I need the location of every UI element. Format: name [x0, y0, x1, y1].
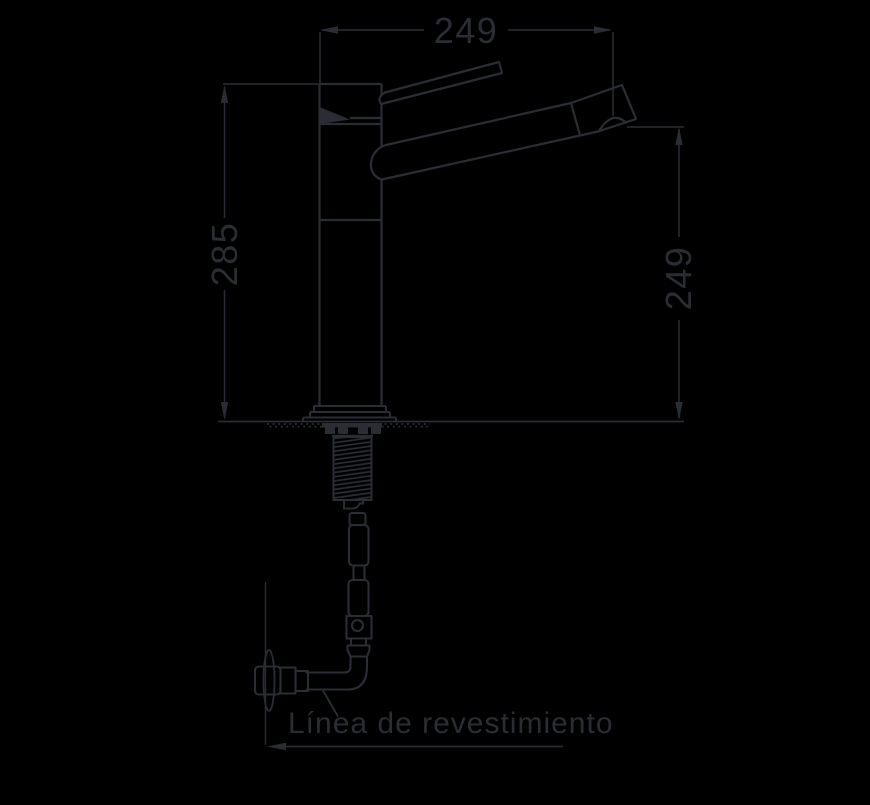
- arrow-right-icon: [594, 26, 612, 34]
- dimension-right-value: 249: [658, 246, 699, 311]
- arrow-down-icon: [675, 402, 682, 420]
- supply-hose: [347, 513, 372, 657]
- arrow-up-icon: [221, 85, 228, 103]
- dimension-top-value: 249: [434, 10, 499, 51]
- dimension-top-width: [223, 26, 613, 116]
- faucet-handle: [379, 62, 502, 104]
- drawing-canvas: 249 285 249 Línea de revestimiento: [0, 0, 870, 805]
- arrow-up-icon: [675, 127, 682, 145]
- faucet-body: [320, 84, 382, 406]
- dimension-left-value: 285: [204, 222, 245, 287]
- faucet-spout: [371, 85, 636, 180]
- arrow-left-icon: [267, 743, 286, 750]
- countertop-line: [218, 422, 684, 427]
- threaded-shank: [334, 437, 372, 509]
- mounting-bracket: [322, 423, 382, 437]
- faucet-technical-drawing: 249 285 249 Línea de revestimiento: [0, 0, 870, 805]
- label-leader: [267, 743, 563, 750]
- hose-fitting-hole: [352, 620, 363, 631]
- arrow-down-icon: [221, 402, 228, 420]
- coating-line-label: Línea de revestimiento: [288, 707, 614, 740]
- arrow-left-icon: [320, 26, 338, 34]
- base-flange: [303, 406, 396, 421]
- swivel-seam-wedge: [320, 107, 351, 124]
